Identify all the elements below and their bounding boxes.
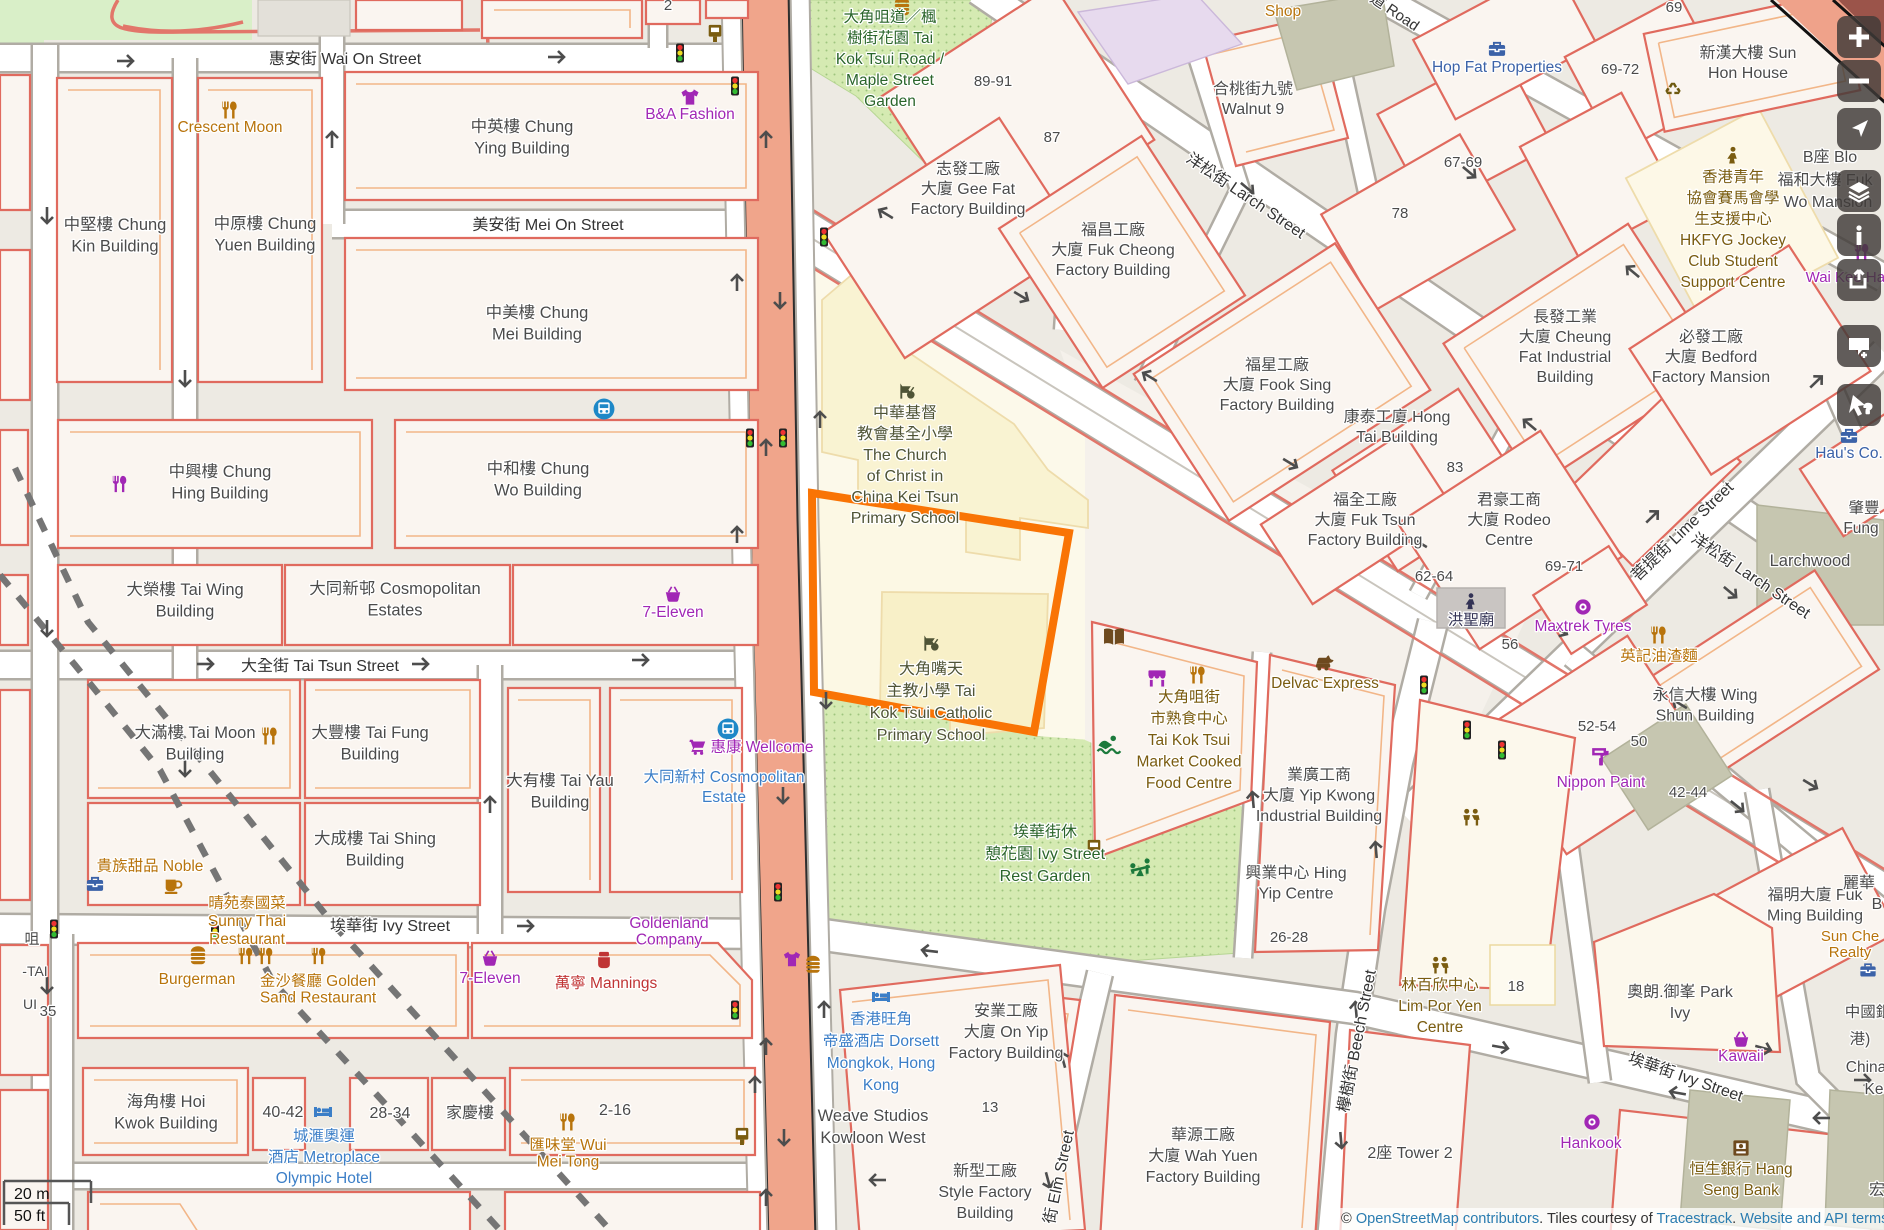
svg-text:Maxtrek Tyres: Maxtrek Tyres (1534, 614, 1631, 636)
svg-text:宏: 宏 (1869, 1176, 1884, 1200)
svg-text:麗華: 麗華 (1843, 869, 1875, 893)
svg-text:咀: 咀 (24, 928, 39, 949)
svg-text:China: China (1846, 1055, 1884, 1077)
svg-text:惠康 Wellcome: 惠康 Wellcome (710, 735, 813, 757)
svg-text:金沙餐廳 GoldenSand Restaurant: 金沙餐廳 GoldenSand Restaurant (260, 969, 377, 1008)
svg-text:美安街 Mei On Street: 美安街 Mei On Street (472, 211, 624, 235)
svg-text:B&A Fashion: B&A Fashion (645, 102, 735, 124)
svg-text:Nippon Paint: Nippon Paint (1557, 770, 1646, 792)
svg-text:52-54: 52-54 (1578, 715, 1616, 736)
svg-text:Hau's Co.: Hau's Co. (1815, 441, 1883, 463)
svg-text:69: 69 (1666, 0, 1683, 17)
svg-text:英記油渣麵: 英記油渣麵 (1620, 644, 1698, 666)
svg-text:海角樓 HoiKwok Building: 海角樓 HoiKwok Building (114, 1088, 218, 1134)
svg-text:35: 35 (40, 1000, 57, 1021)
svg-text:中堅樓 ChungKin Building: 中堅樓 ChungKin Building (64, 211, 167, 257)
svg-text:© OpenStreetMap contributors.: © OpenStreetMap contributors. Tiles cour… (1341, 1207, 1884, 1228)
svg-text:89-91: 89-91 (974, 70, 1012, 91)
svg-text:Hankook: Hankook (1560, 1131, 1621, 1153)
svg-text:UI: UI (23, 994, 37, 1014)
svg-text:中原樓 ChungYuen Building: 中原樓 ChungYuen Building (214, 210, 317, 256)
svg-text:萬寧 Mannings: 萬寧 Mannings (555, 971, 658, 993)
svg-text:Kawaii: Kawaii (1718, 1044, 1764, 1066)
svg-text:13: 13 (982, 1096, 999, 1117)
svg-text:67-69: 67-69 (1444, 151, 1482, 172)
svg-text:大全街 Tai Tsun Street: 大全街 Tai Tsun Street (241, 652, 400, 676)
svg-text:50: 50 (1631, 730, 1648, 751)
svg-text:Crescent Moon: Crescent Moon (177, 115, 282, 137)
svg-text:Shop: Shop (1265, 0, 1301, 21)
svg-text:埃華街 Ivy Street: 埃華街 Ivy Street (330, 912, 451, 936)
svg-text:Weave StudiosKowloon West: Weave StudiosKowloon West (818, 1102, 929, 1148)
svg-text:貴族甜品 Noble: 貴族甜品 Noble (97, 854, 204, 876)
svg-text:Burgerman: Burgerman (159, 967, 236, 989)
svg-text:28-34: 28-34 (370, 1099, 411, 1123)
svg-text:Ke: Ke (1865, 1077, 1884, 1099)
svg-text:56: 56 (1502, 633, 1519, 654)
svg-text:42-44: 42-44 (1669, 781, 1707, 802)
svg-text:83: 83 (1447, 456, 1464, 477)
svg-text:恒生銀行 HangSeng Bank: 恒生銀行 HangSeng Bank (1689, 1157, 1792, 1200)
svg-text:合桃街九號Walnut 9: 合桃街九號Walnut 9 (1213, 75, 1293, 119)
svg-text:興業中心 HingYip Centre: 興業中心 HingYip Centre (1245, 859, 1346, 904)
svg-text:20 m: 20 m (14, 1180, 50, 1204)
svg-text:中英樓 ChungYing Building: 中英樓 ChungYing Building (471, 113, 574, 159)
svg-text:78: 78 (1392, 202, 1409, 223)
svg-text:新漢大樓 SunHon House: 新漢大樓 SunHon House (1700, 39, 1797, 83)
svg-text:GoldenlandCompany: GoldenlandCompany (629, 911, 708, 950)
svg-text:肇豐: 肇豐 (1848, 496, 1879, 518)
svg-text:7-Eleven: 7-Eleven (459, 966, 520, 988)
svg-text:62-64: 62-64 (1415, 565, 1453, 586)
svg-text:Fung: Fung (1843, 516, 1878, 538)
svg-text:2座 Tower 2: 2座 Tower 2 (1367, 1139, 1452, 1163)
svg-text:Hop Fat Properties: Hop Fat Properties (1432, 55, 1562, 77)
svg-text:晴苑泰國菜Sunny ThaiRestaurant: 晴苑泰國菜Sunny ThaiRestaurant (208, 891, 286, 949)
svg-text:69-72: 69-72 (1601, 58, 1639, 79)
svg-text:B: B (1872, 890, 1883, 914)
svg-text:港): 港) (1850, 1027, 1871, 1049)
svg-text:洪聖廟: 洪聖廟 (1448, 608, 1495, 630)
svg-text:中興樓 ChungHing Building: 中興樓 ChungHing Building (169, 458, 272, 504)
svg-text:2-16: 2-16 (599, 1096, 631, 1120)
svg-text:69-71: 69-71 (1545, 555, 1583, 576)
svg-text:-TAI: -TAI (22, 961, 47, 981)
svg-text:康泰工廈 HongTai Building: 康泰工廈 HongTai Building (1344, 403, 1451, 447)
svg-text:永信大樓 WingShun Building: 永信大樓 WingShun Building (1653, 681, 1758, 726)
svg-text:50 ft: 50 ft (14, 1202, 46, 1226)
svg-text:26-28: 26-28 (1270, 926, 1308, 947)
svg-text:18: 18 (1508, 975, 1525, 996)
svg-text:87: 87 (1044, 126, 1061, 147)
svg-text:2: 2 (664, 0, 672, 15)
svg-text:Larchwood: Larchwood (1770, 547, 1851, 571)
svg-text:40-42: 40-42 (263, 1098, 304, 1122)
svg-text:Delvac Express: Delvac Express (1271, 671, 1379, 693)
svg-text:7-Eleven: 7-Eleven (642, 600, 703, 622)
svg-text:家慶樓: 家慶樓 (446, 1099, 494, 1123)
svg-text:中美樓 ChungMei Building: 中美樓 ChungMei Building (486, 299, 589, 345)
svg-text:惠安街 Wai On Street: 惠安街 Wai On Street (269, 45, 422, 69)
svg-text:?: ? (1864, 398, 1872, 417)
svg-text:Sun CheRealty: Sun CheRealty (1821, 925, 1879, 962)
svg-text:中和樓 ChungWo Building: 中和樓 ChungWo Building (487, 455, 590, 501)
svg-text:匯味堂 WuiMei Tong: 匯味堂 WuiMei Tong (529, 1133, 606, 1172)
svg-text:中國銀: 中國銀 (1845, 1000, 1884, 1022)
